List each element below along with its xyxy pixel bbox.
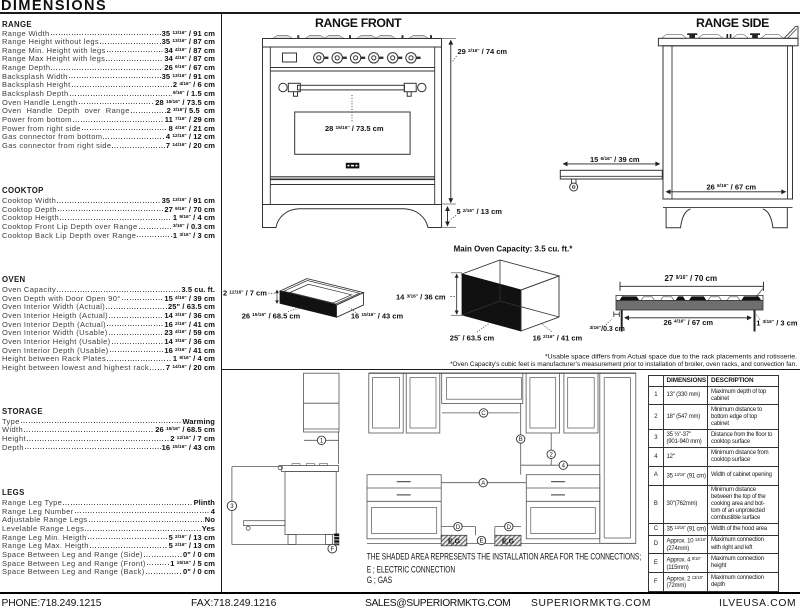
svg-text:D: D	[456, 525, 461, 531]
svg-text:C: C	[481, 411, 486, 417]
svg-text:THE SHADED AREA REPRESENTS THE: THE SHADED AREA REPRESENTS THE INSTALLAT…	[367, 551, 642, 561]
svg-text:25" / 63.5 cm: 25" / 63.5 cm	[450, 333, 495, 342]
svg-text:16 15/16" / 43 cm: 16 15/16" / 43 cm	[351, 311, 404, 320]
svg-text:E,G: E,G	[502, 538, 515, 545]
svg-text:1 3/16" / 3 cm: 1 3/16" / 3 cm	[756, 318, 798, 327]
svg-text:2 12/16" / 7 cm: 2 12/16" / 7 cm	[223, 289, 267, 298]
svg-text:G ; GAS: G ; GAS	[367, 575, 393, 585]
svg-text:E: E	[479, 539, 483, 545]
svg-text:A: A	[481, 481, 485, 487]
svg-text:5 2/16" / 13 cm: 5 2/16" / 13 cm	[457, 207, 503, 216]
svg-text:D: D	[507, 525, 512, 531]
svg-text:E,G: E,G	[448, 538, 461, 545]
svg-text:26 6/16" / 67 cm: 26 6/16" / 67 cm	[707, 182, 757, 191]
svg-text:26 15/16" / 68.5 cm: 26 15/16" / 68.5 cm	[242, 311, 301, 320]
svg-text:F: F	[330, 547, 334, 553]
svg-text:14 3/16" / 36 cm: 14 3/16" / 36 cm	[396, 293, 446, 302]
svg-text:26 4/16" / 67 cm: 26 4/16" / 67 cm	[664, 318, 714, 327]
svg-text:28 15/16" / 73.5 cm: 28 15/16" / 73.5 cm	[325, 124, 384, 133]
svg-text:3/16"/0.3 cm: 3/16"/0.3 cm	[590, 325, 625, 333]
svg-text:29 2/16" / 74 cm: 29 2/16" / 74 cm	[458, 47, 508, 56]
svg-text:16 2/16" / 41 cm: 16 2/16" / 41 cm	[533, 333, 583, 342]
svg-text:15 6/16" / 39 cm: 15 6/16" / 39 cm	[590, 155, 640, 164]
svg-text:Main Oven Capacity: 3.5 cu. ft: Main Oven Capacity: 3.5 cu. ft.*	[454, 245, 574, 254]
svg-text:E ; ELECTRIC CONNECTION: E ; ELECTRIC CONNECTION	[367, 564, 456, 574]
svg-text:*Usable space differs from Act: *Usable space differs from Actual space …	[545, 354, 797, 361]
svg-text:*Oven Capacity’s cubic feet is: *Oven Capacity’s cubic feet is manufactu…	[450, 361, 797, 368]
svg-text:B: B	[519, 437, 523, 443]
svg-text:27 9/16" / 70 cm: 27 9/16" / 70 cm	[665, 274, 718, 283]
